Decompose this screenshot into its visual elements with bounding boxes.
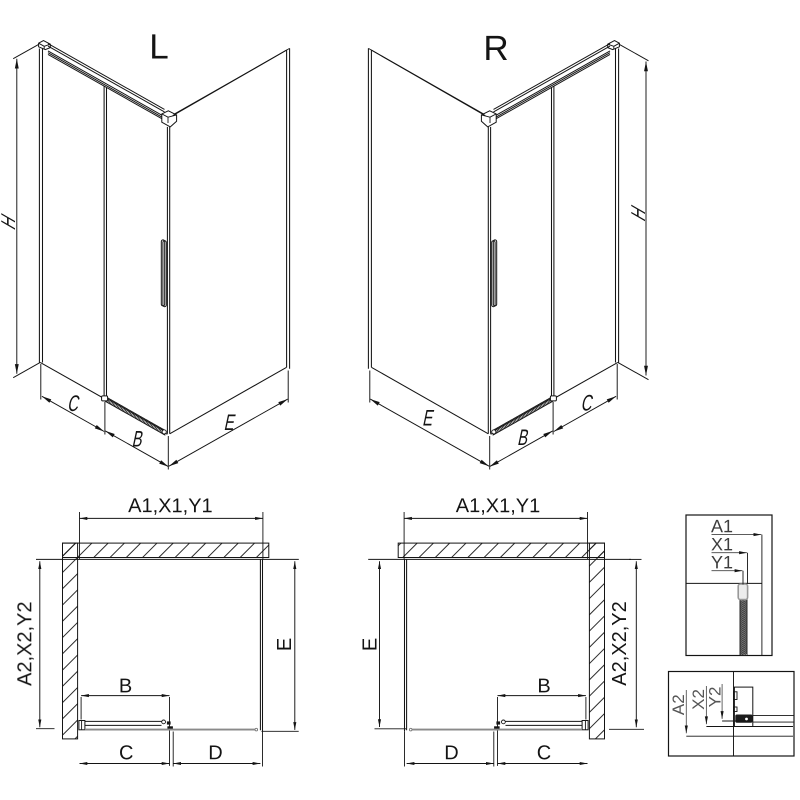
- svg-text:D: D: [444, 742, 458, 764]
- svg-text:X1: X1: [711, 534, 733, 554]
- svg-text:R: R: [483, 29, 508, 68]
- svg-text:Y1: Y1: [711, 552, 733, 572]
- svg-text:B: B: [119, 675, 132, 697]
- svg-text:D: D: [208, 742, 222, 764]
- svg-text:L: L: [149, 27, 168, 66]
- svg-text:A2,X2,Y2: A2,X2,Y2: [14, 601, 36, 686]
- svg-text:E: E: [360, 638, 382, 651]
- svg-text:E: E: [274, 638, 296, 651]
- svg-text:A2,X2,Y2: A2,X2,Y2: [609, 601, 631, 686]
- svg-text:A2: A2: [669, 694, 688, 715]
- svg-text:A1: A1: [711, 516, 733, 536]
- svg-text:Y2: Y2: [706, 687, 725, 708]
- svg-text:C: C: [119, 742, 133, 764]
- svg-text:A1,X1,Y1: A1,X1,Y1: [128, 495, 213, 517]
- svg-text:B: B: [537, 675, 550, 697]
- svg-text:C: C: [537, 742, 551, 764]
- svg-text:A1,X1,Y1: A1,X1,Y1: [456, 495, 541, 517]
